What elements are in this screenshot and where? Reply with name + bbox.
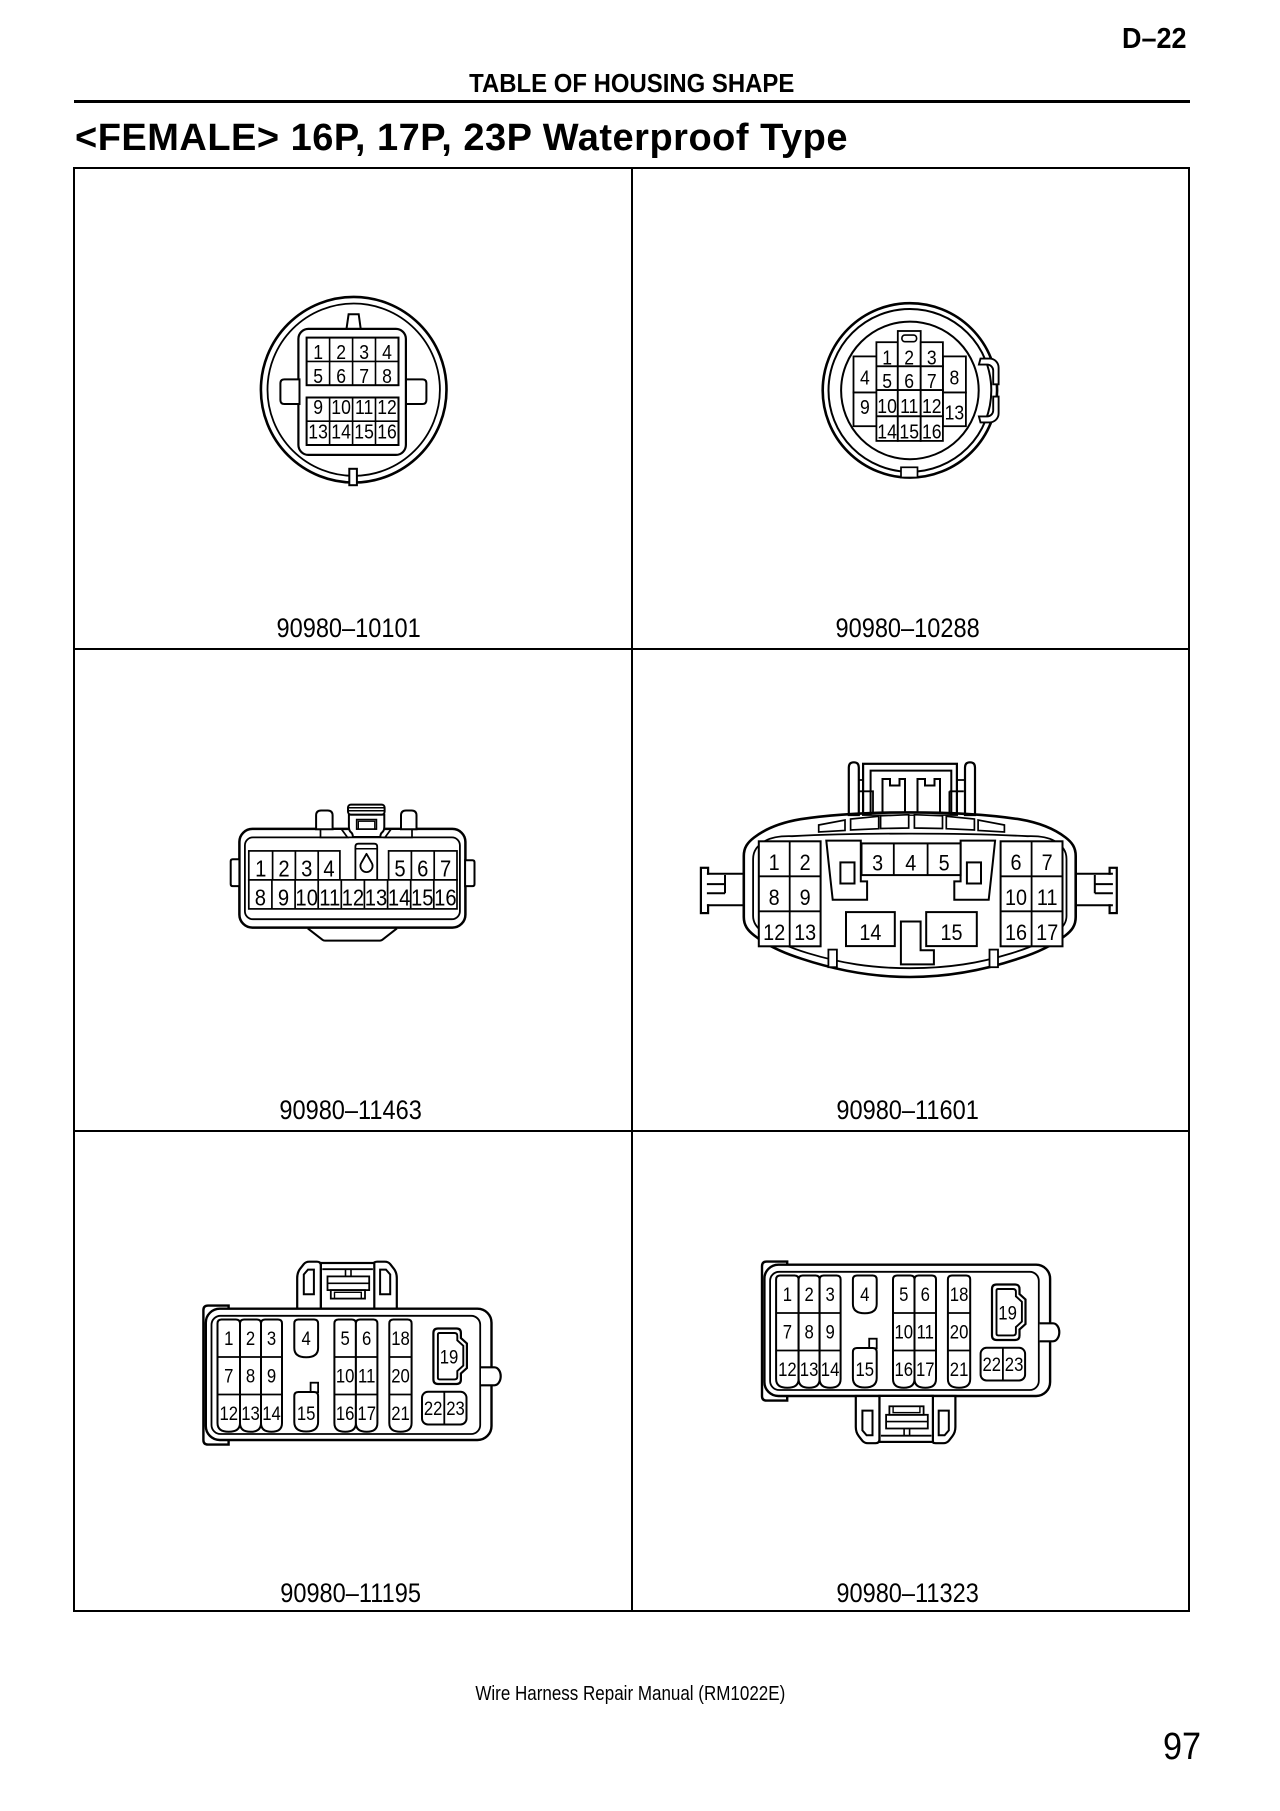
svg-text:6: 6 [362, 1328, 371, 1349]
svg-text:8: 8 [950, 366, 960, 388]
svg-text:15: 15 [899, 421, 919, 443]
svg-text:13: 13 [241, 1403, 260, 1424]
svg-text:14: 14 [331, 420, 351, 442]
svg-text:1: 1 [255, 855, 266, 882]
svg-text:12: 12 [922, 395, 942, 417]
svg-text:2: 2 [336, 341, 346, 363]
svg-text:10: 10 [295, 884, 318, 911]
svg-text:2: 2 [800, 851, 811, 875]
svg-text:6: 6 [904, 370, 914, 392]
svg-text:16: 16 [377, 420, 397, 442]
svg-text:3: 3 [359, 341, 369, 363]
svg-text:4: 4 [905, 851, 916, 875]
svg-text:21: 21 [391, 1403, 410, 1424]
svg-text:8: 8 [769, 886, 780, 910]
svg-text:8: 8 [382, 365, 392, 387]
svg-text:15: 15 [940, 921, 962, 945]
svg-text:1: 1 [313, 341, 323, 363]
svg-text:1: 1 [769, 851, 780, 875]
svg-text:9: 9 [800, 886, 811, 910]
svg-text:14: 14 [388, 884, 411, 911]
svg-text:19: 19 [440, 1346, 459, 1367]
svg-text:5: 5 [394, 855, 405, 882]
svg-text:3: 3 [872, 851, 883, 875]
svg-text:11: 11 [900, 395, 918, 417]
svg-text:11: 11 [355, 396, 373, 418]
svg-text:16: 16 [336, 1403, 355, 1424]
svg-text:10: 10 [877, 395, 897, 417]
svg-text:10: 10 [336, 1366, 355, 1387]
svg-text:14: 14 [262, 1403, 281, 1424]
svg-text:4: 4 [302, 1328, 311, 1349]
svg-text:14: 14 [859, 921, 881, 945]
svg-text:6: 6 [1010, 851, 1021, 875]
svg-text:5: 5 [882, 370, 892, 392]
svg-text:13: 13 [945, 401, 965, 423]
svg-text:11: 11 [358, 1366, 375, 1387]
svg-text:12: 12 [342, 884, 365, 911]
svg-text:16: 16 [434, 884, 457, 911]
svg-text:5: 5 [313, 365, 323, 387]
svg-text:8: 8 [246, 1366, 255, 1387]
svg-text:1: 1 [224, 1328, 233, 1349]
svg-text:3: 3 [301, 855, 312, 882]
svg-text:2: 2 [246, 1328, 255, 1349]
svg-text:15: 15 [297, 1403, 316, 1424]
svg-text:7: 7 [440, 855, 451, 882]
svg-text:16: 16 [922, 421, 942, 443]
svg-text:14: 14 [877, 421, 897, 443]
svg-text:8: 8 [255, 884, 266, 911]
svg-text:9: 9 [313, 396, 323, 418]
svg-text:9: 9 [267, 1366, 276, 1387]
svg-text:4: 4 [323, 855, 334, 882]
svg-text:7: 7 [224, 1366, 233, 1387]
svg-text:11: 11 [319, 884, 340, 911]
svg-text:15: 15 [354, 420, 374, 442]
svg-text:6: 6 [336, 365, 346, 387]
svg-text:12: 12 [763, 921, 785, 945]
svg-text:9: 9 [860, 396, 870, 418]
svg-text:5: 5 [939, 851, 950, 875]
svg-text:5: 5 [341, 1328, 350, 1349]
svg-text:22: 22 [424, 1398, 443, 1419]
svg-text:2: 2 [904, 346, 914, 368]
svg-text:4: 4 [382, 341, 392, 363]
svg-text:12: 12 [377, 396, 397, 418]
svg-text:6: 6 [417, 855, 428, 882]
svg-text:3: 3 [267, 1328, 276, 1349]
svg-text:7: 7 [927, 370, 937, 392]
svg-text:20: 20 [391, 1366, 410, 1387]
svg-text:18: 18 [391, 1328, 410, 1349]
svg-text:13: 13 [365, 884, 388, 911]
svg-text:16: 16 [1005, 921, 1027, 945]
svg-text:9: 9 [278, 884, 289, 911]
svg-text:13: 13 [794, 921, 816, 945]
svg-text:17: 17 [357, 1403, 376, 1424]
svg-text:7: 7 [359, 365, 369, 387]
svg-text:12: 12 [220, 1403, 239, 1424]
svg-text:17: 17 [1036, 921, 1058, 945]
svg-text:1: 1 [882, 346, 892, 368]
svg-text:3: 3 [927, 346, 937, 368]
svg-text:2: 2 [278, 855, 289, 882]
svg-text:13: 13 [308, 420, 328, 442]
svg-text:11: 11 [1037, 886, 1058, 910]
svg-text:10: 10 [1005, 886, 1027, 910]
svg-text:4: 4 [860, 366, 870, 388]
svg-text:23: 23 [446, 1398, 465, 1419]
svg-text:7: 7 [1042, 851, 1053, 875]
svg-text:10: 10 [331, 396, 351, 418]
svg-text:15: 15 [411, 884, 434, 911]
